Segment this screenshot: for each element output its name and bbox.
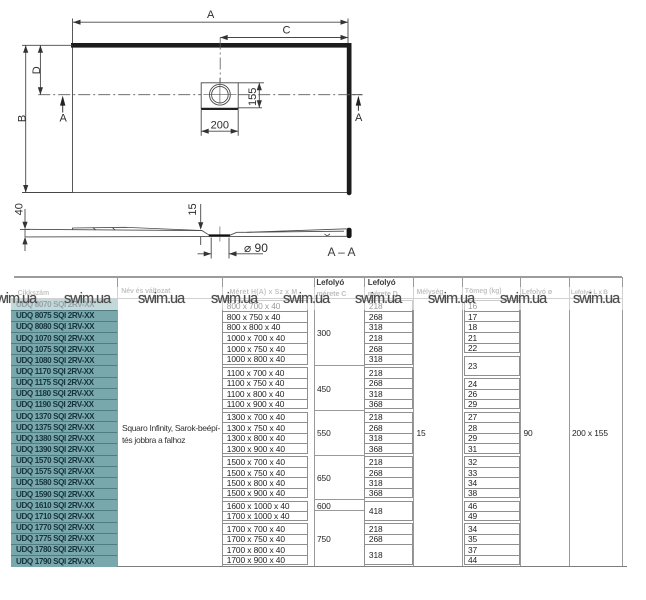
svg-text:200: 200 [211,120,229,132]
svg-text:D: D [31,66,43,74]
svg-text:A: A [60,113,68,125]
svg-text:A: A [207,9,215,21]
svg-text:A: A [355,112,363,124]
svg-text:A – A: A – A [328,245,356,259]
svg-text:15: 15 [187,203,199,215]
svg-text:B: B [16,115,28,122]
svg-text:155: 155 [247,88,259,106]
svg-text:⌀ 90: ⌀ 90 [244,241,268,255]
svg-text:C: C [283,25,291,37]
svg-text:40: 40 [13,203,25,215]
